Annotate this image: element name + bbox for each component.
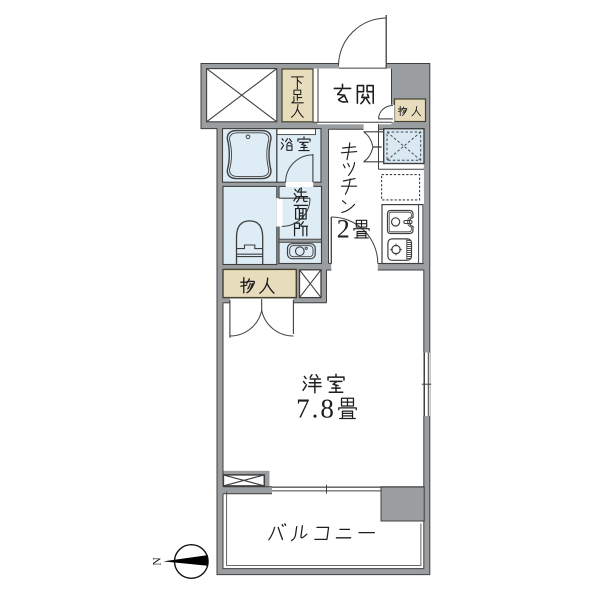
svg-text:N: N <box>152 557 164 566</box>
svg-text:2: 2 <box>337 215 350 244</box>
svg-text:7.8: 7.8 <box>296 393 336 423</box>
